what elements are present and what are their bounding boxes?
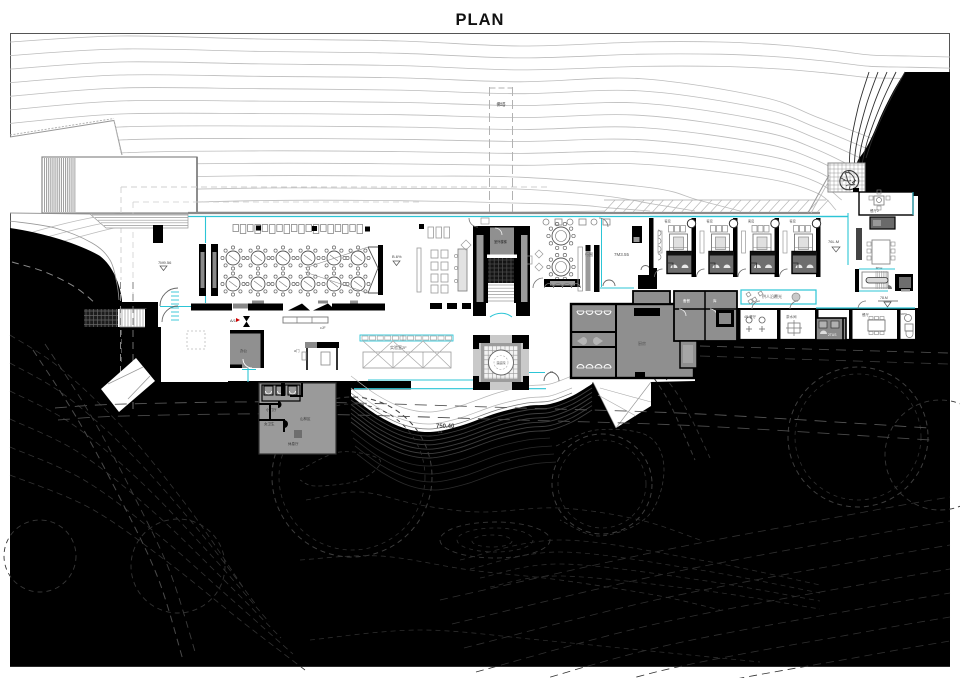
svg-text:客房: 客房 <box>665 219 671 224</box>
svg-text:行围: 行围 <box>585 251 593 257</box>
svg-text:供人沿覆光: 供人沿覆光 <box>762 293 782 299</box>
svg-text:小门厅: 小门厅 <box>266 407 277 412</box>
svg-text:7M9.56: 7M9.56 <box>158 260 172 265</box>
svg-text:实验室2F: 实验室2F <box>390 344 407 350</box>
svg-text:PLAN: PLAN <box>456 11 505 29</box>
svg-text:78.M: 78.M <box>880 296 888 300</box>
svg-text:备餐: 备餐 <box>683 298 691 303</box>
svg-text:B.6%: B.6% <box>392 254 402 259</box>
svg-text:库: 库 <box>713 298 717 303</box>
svg-text:室外楼梯: 室外楼梯 <box>494 239 508 244</box>
svg-text:莲庭院: 莲庭院 <box>496 360 505 365</box>
svg-text:客房: 客房 <box>790 219 796 224</box>
svg-text:厨房: 厨房 <box>638 340 646 346</box>
svg-text:2TUS: 2TUS <box>828 333 837 337</box>
svg-text:客房: 客房 <box>707 219 713 224</box>
svg-text:a门: a门 <box>294 348 300 353</box>
svg-text:A/1: A/1 <box>230 318 237 323</box>
svg-text:餐厅: 餐厅 <box>862 312 870 317</box>
svg-text:GL: GL <box>438 430 443 434</box>
svg-text:7M3.55: 7M3.55 <box>614 252 630 257</box>
svg-text:女卫生: 女卫生 <box>264 421 275 426</box>
svg-text:76L.M: 76L.M <box>828 239 839 244</box>
svg-text:办公: 办公 <box>240 348 247 353</box>
svg-text:山林区: 山林区 <box>300 416 311 421</box>
svg-text:茶水间: 茶水间 <box>786 314 797 319</box>
svg-text:餐厅2: 餐厅2 <box>870 208 879 213</box>
svg-text:休息厅: 休息厅 <box>288 441 299 446</box>
svg-text:客房: 客房 <box>748 219 754 224</box>
svg-text:cJF: cJF <box>320 326 326 330</box>
svg-text:佛塔: 佛塔 <box>497 101 506 108</box>
svg-text:4B 餐厅: 4B 餐厅 <box>744 314 757 319</box>
